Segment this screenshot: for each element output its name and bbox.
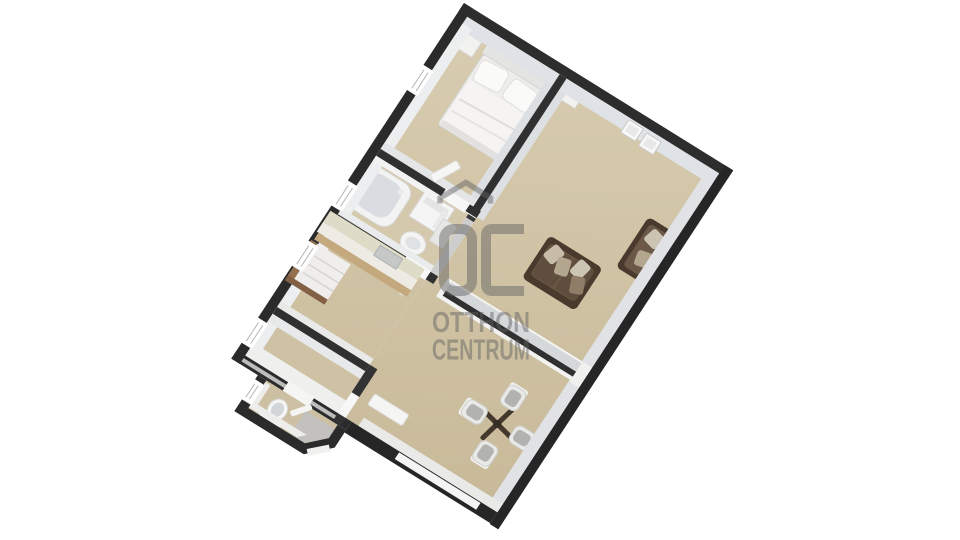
svg-text:CENTRUM: CENTRUM <box>432 335 530 367</box>
